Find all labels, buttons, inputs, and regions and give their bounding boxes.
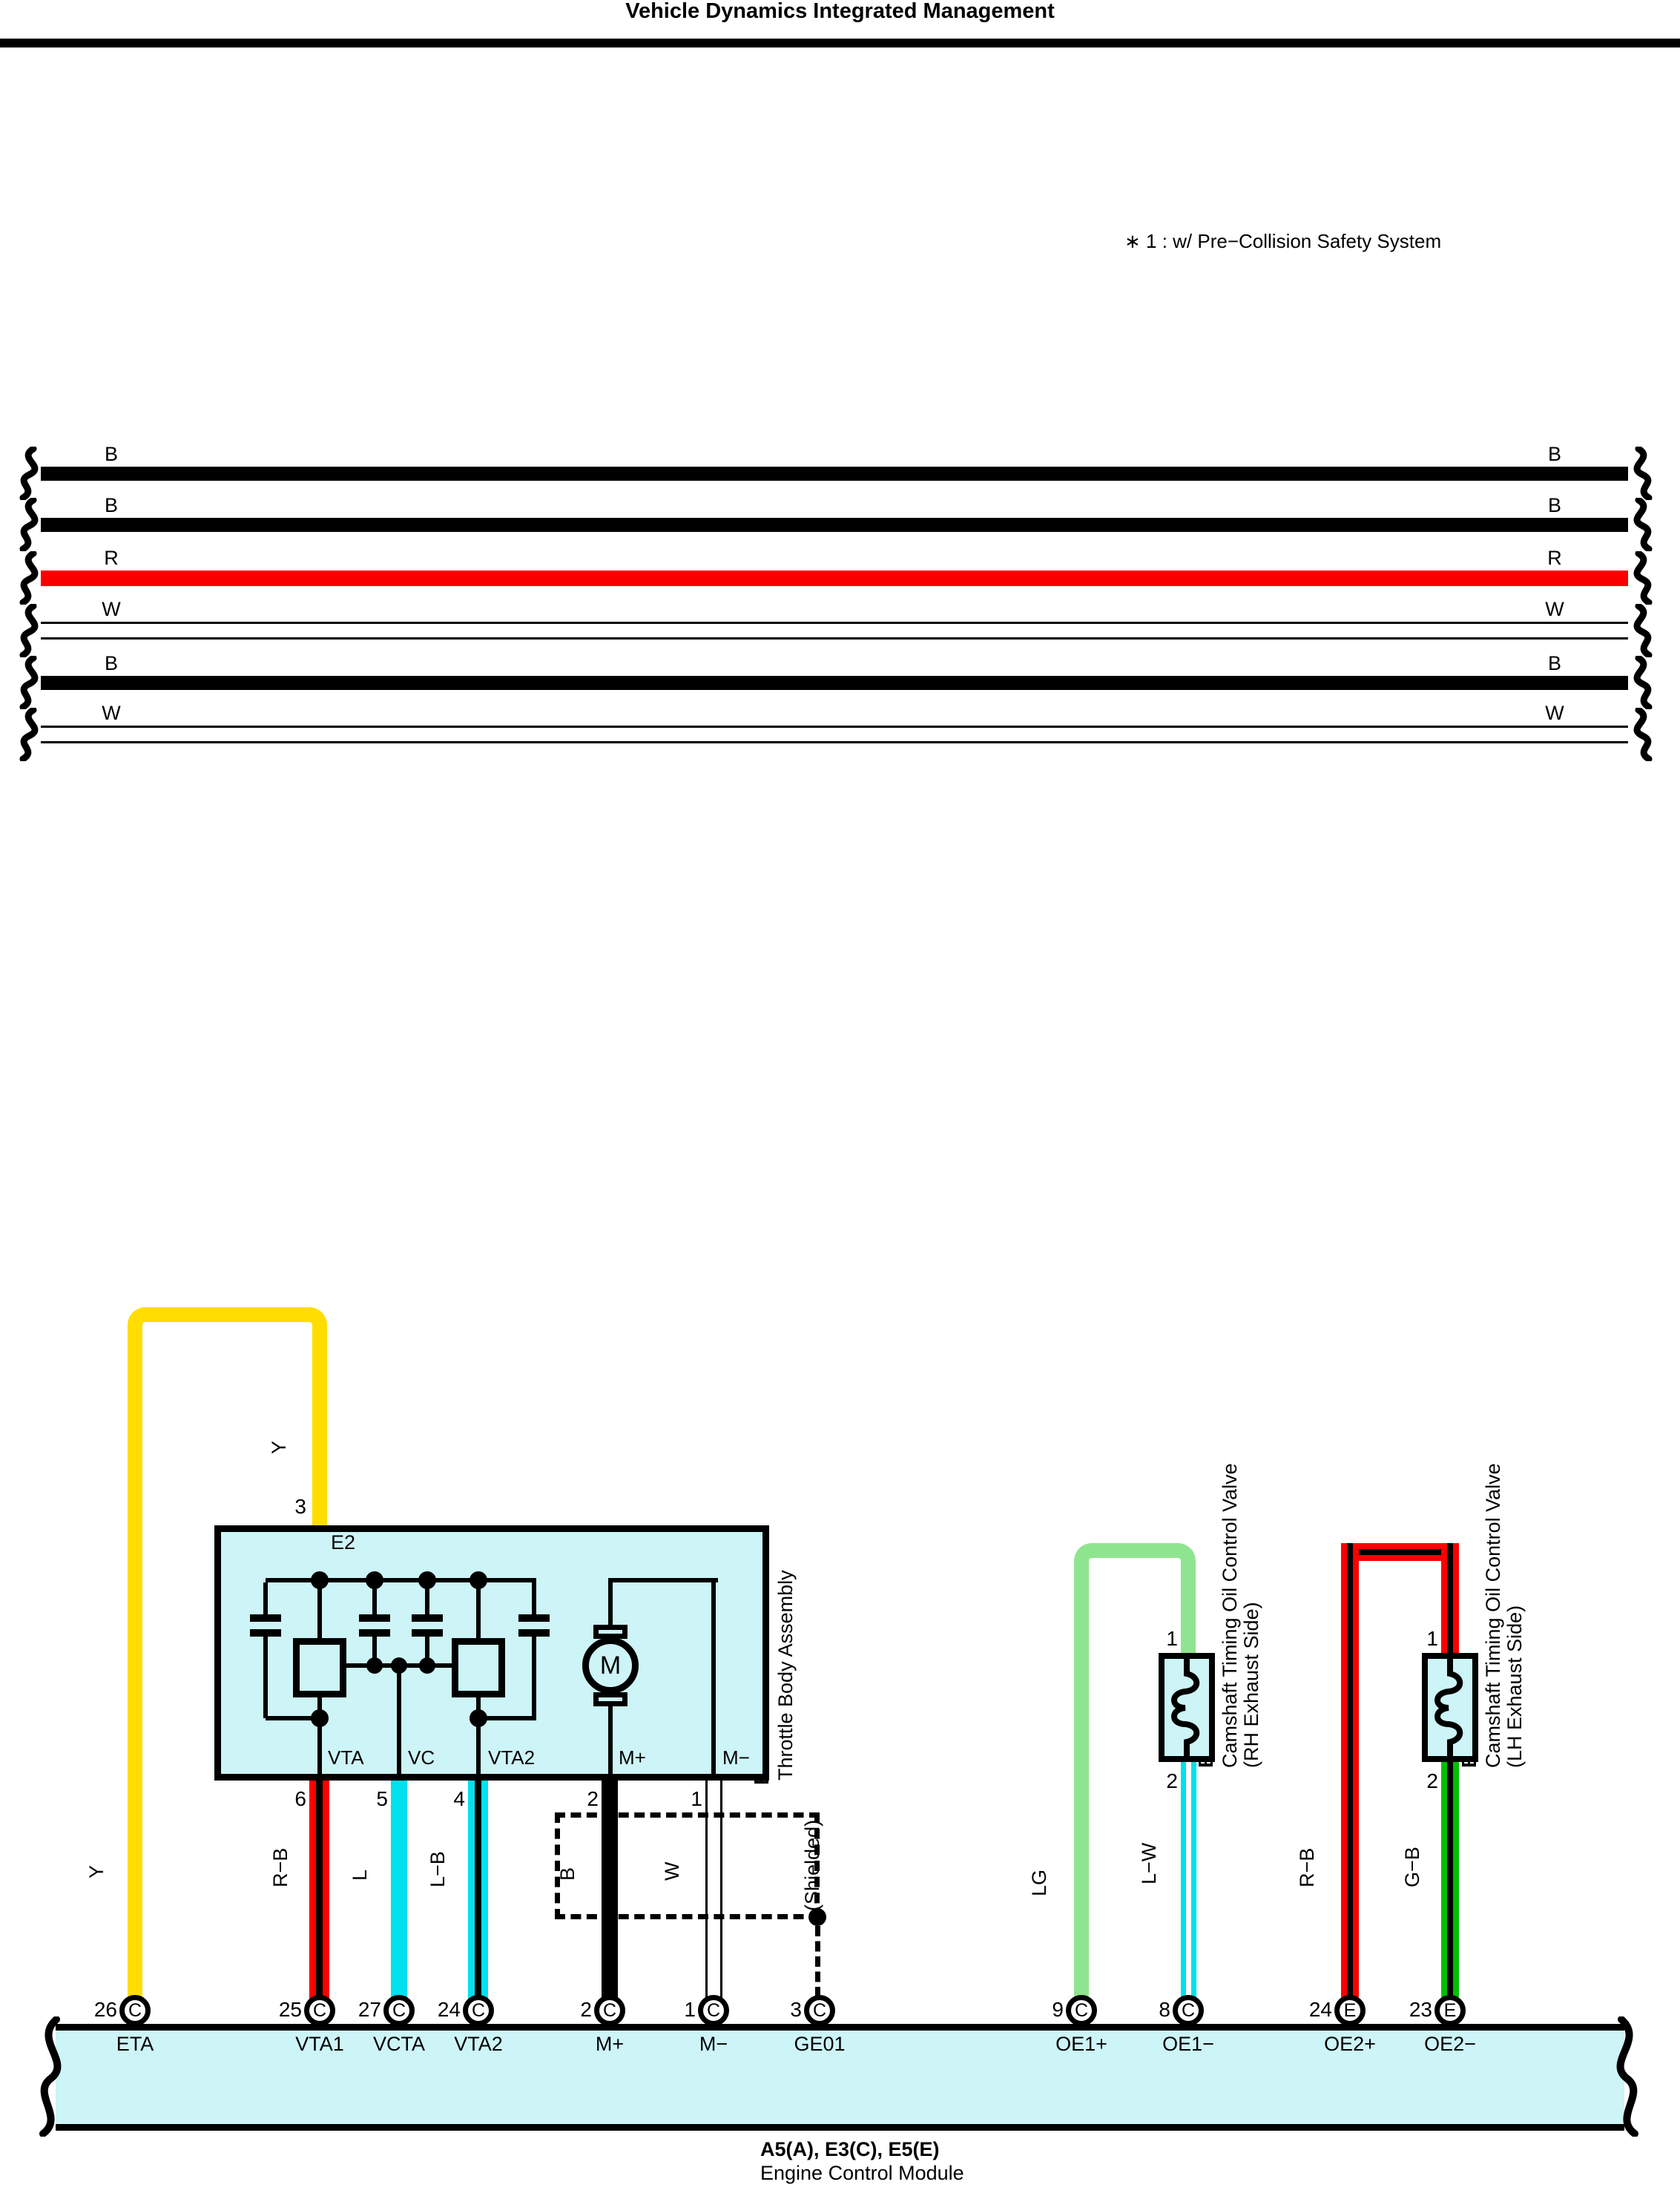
wire-color-label-y: Y bbox=[85, 1865, 108, 1878]
pin-number: 2 bbox=[554, 1788, 599, 1810]
ecm-terminal-label: VTA2 bbox=[426, 2033, 530, 2055]
wire-green-black bbox=[1441, 1761, 1459, 1997]
ecm-terminal-label: OE2− bbox=[1398, 2033, 1502, 2055]
connector-circle: C bbox=[698, 1995, 729, 2026]
capacitor-icon bbox=[518, 1629, 550, 1637]
valve-pin-number: 2 bbox=[1394, 1770, 1438, 1792]
capacitor-icon bbox=[359, 1629, 390, 1637]
motor-icon: M bbox=[582, 1637, 639, 1694]
trunk-wire-label-left: B bbox=[95, 494, 128, 516]
component-name: Camshaft Timing Oil Control Valve bbox=[1482, 1463, 1504, 1768]
trunk-wire-label-right: B bbox=[1538, 443, 1571, 465]
connector-circle: C bbox=[804, 1995, 835, 2026]
ecm-caption-connectors: A5(A), E3(C), E5(E) bbox=[760, 2138, 940, 2160]
capacitor-icon bbox=[359, 1614, 390, 1622]
connector-circle: C bbox=[463, 1995, 494, 2026]
wire-break-icon bbox=[1632, 498, 1657, 551]
terminal-label-vc: VC bbox=[408, 1746, 435, 1769]
capacitor-lead bbox=[263, 1637, 268, 1718]
motor-lead bbox=[608, 1582, 613, 1627]
pin-number: 6 bbox=[262, 1788, 306, 1810]
motor-terminal-icon bbox=[593, 1692, 627, 1706]
valve-pin-number: 2 bbox=[1133, 1770, 1178, 1792]
wire-break-icon bbox=[15, 498, 40, 551]
connector-code-e2: E2 bbox=[331, 1531, 355, 1554]
box-break-icon bbox=[31, 2016, 64, 2137]
component-side: (LH Exhaust Side) bbox=[1503, 1605, 1526, 1768]
box-break-icon bbox=[1614, 2016, 1647, 2137]
wire-color-label: L−W bbox=[1138, 1843, 1160, 1884]
trunk-wire-label-right: W bbox=[1538, 702, 1571, 724]
sensor-element-icon bbox=[452, 1638, 505, 1697]
wire-red-black-oe2plus bbox=[1341, 1543, 1359, 1997]
wire-light-green-oe1plus bbox=[1074, 1651, 1089, 1997]
junction-dot bbox=[419, 1657, 435, 1674]
wire-break-icon bbox=[1632, 604, 1657, 657]
shielded-label: (Shielded) bbox=[801, 1820, 823, 1911]
wire-break-icon bbox=[15, 551, 40, 605]
trunk-wire-white bbox=[41, 622, 1628, 640]
component-name-throttle-body: Throttle Body Assembly bbox=[774, 1570, 797, 1781]
wire-color-label: R−B bbox=[1296, 1848, 1318, 1887]
wire-break-icon bbox=[1632, 656, 1657, 709]
wire-break-icon bbox=[15, 447, 40, 500]
wire-color-label: L bbox=[349, 1870, 371, 1881]
connector-pin-number: 2 bbox=[547, 1999, 592, 2021]
connector-pin-number: 25 bbox=[257, 1999, 302, 2021]
trunk-wire-label-right: B bbox=[1538, 494, 1571, 516]
internal-lead-vta2 bbox=[476, 1697, 481, 1781]
trunk-wire-label-right: W bbox=[1538, 598, 1571, 620]
connector-pin-number: 1 bbox=[651, 1999, 696, 2021]
capacitor-lead bbox=[372, 1582, 377, 1614]
wire-red-black-valve-lead bbox=[1441, 1543, 1459, 1653]
sensor-element-icon bbox=[293, 1638, 346, 1697]
connector-pin-number: 26 bbox=[73, 1999, 117, 2021]
ecm-terminal-label: OE1+ bbox=[1030, 2033, 1133, 2055]
capacitor-icon bbox=[250, 1614, 281, 1622]
capacitor-icon bbox=[412, 1629, 443, 1637]
connector-circle: E bbox=[1434, 1995, 1466, 2026]
coil-icon bbox=[1166, 1659, 1208, 1756]
wire-blue-white bbox=[1181, 1761, 1196, 1997]
capacitor-lead bbox=[425, 1582, 429, 1614]
connector-pin-number: 3 bbox=[757, 1999, 802, 2021]
connector-circle: C bbox=[594, 1995, 625, 2026]
internal-lead-m-plus bbox=[608, 1704, 613, 1781]
coil-icon bbox=[1429, 1659, 1471, 1756]
connector-circle: E bbox=[1334, 1995, 1366, 2026]
connector-circle: C bbox=[1066, 1995, 1097, 2026]
wire-break-icon bbox=[1632, 447, 1657, 500]
wire-color-label-y: Y bbox=[268, 1441, 290, 1454]
terminal-label-vta: VTA bbox=[328, 1746, 364, 1769]
wire-break-icon bbox=[15, 708, 40, 761]
pin-number: 5 bbox=[343, 1788, 388, 1810]
wire-break-icon bbox=[1632, 551, 1657, 605]
internal-lead-vc bbox=[397, 1666, 401, 1781]
capacitor-icon bbox=[412, 1614, 443, 1622]
component-side: (RH Exhaust Side) bbox=[1240, 1602, 1262, 1768]
footnote: ∗ 1 : w/ Pre−Collision Safety System bbox=[1124, 230, 1441, 252]
motor-terminal-icon bbox=[593, 1625, 627, 1639]
connector-pin-number: 9 bbox=[1019, 1999, 1064, 2021]
trunk-wire-red bbox=[41, 571, 1628, 586]
internal-bus-top bbox=[266, 1578, 536, 1582]
internal-lead-vta bbox=[317, 1697, 322, 1781]
connector-pin-number: 8 bbox=[1126, 1999, 1170, 2021]
wire-red-black bbox=[309, 1781, 329, 1999]
pin-number: 1 bbox=[658, 1788, 702, 1810]
connector-pin-number: 23 bbox=[1388, 1999, 1432, 2021]
capacitor-lead bbox=[532, 1637, 536, 1718]
ecm-terminal-label: OE2+ bbox=[1298, 2033, 1402, 2055]
trunk-wire-white bbox=[41, 726, 1628, 743]
motor-bus bbox=[608, 1578, 718, 1582]
ecm-terminal-label: OE1− bbox=[1136, 2033, 1240, 2055]
ecm-terminal-label: GE01 bbox=[768, 2033, 872, 2055]
valve-pin-number: 1 bbox=[1394, 1628, 1438, 1650]
terminal-label-m-minus: M− bbox=[722, 1746, 750, 1769]
page-title: Vehicle Dynamics Integrated Management bbox=[0, 0, 1680, 22]
capacitor-icon bbox=[250, 1629, 281, 1637]
component-name: Camshaft Timing Oil Control Valve bbox=[1219, 1463, 1241, 1768]
connector-circle: C bbox=[383, 1995, 415, 2026]
internal-lead-vta bbox=[317, 1582, 322, 1638]
ecm-terminal-label: M− bbox=[662, 2033, 765, 2055]
wire-yellow-hook bbox=[128, 1307, 327, 1525]
wire-color-label: G−B bbox=[1401, 1847, 1423, 1887]
ecm-terminal-label: M+ bbox=[558, 2033, 662, 2055]
trunk-wire-black bbox=[41, 676, 1628, 690]
internal-lead-m-minus bbox=[711, 1582, 716, 1781]
wire-blue bbox=[391, 1781, 407, 1999]
capacitor-icon bbox=[518, 1614, 550, 1622]
ecm-terminal-label: ETA bbox=[83, 2033, 187, 2055]
connector-circle: C bbox=[304, 1995, 335, 2026]
trunk-wire-label-right: B bbox=[1538, 652, 1571, 674]
connector-circle: C bbox=[119, 1995, 151, 2026]
terminal-label-vta2: VTA2 bbox=[488, 1746, 535, 1769]
trunk-wire-label-left: W bbox=[95, 702, 128, 724]
title-rule bbox=[0, 39, 1680, 47]
connector-pin-number: 24 bbox=[1288, 1999, 1332, 2021]
wire-blue-black bbox=[468, 1781, 488, 1999]
terminal-label-m-plus: M+ bbox=[619, 1746, 646, 1769]
trunk-wire-label-left: B bbox=[95, 443, 128, 465]
shield-outline bbox=[555, 1812, 820, 1919]
wire-color-label: LG bbox=[1028, 1870, 1050, 1896]
pin-number: 4 bbox=[421, 1788, 465, 1810]
wire-break-icon bbox=[1632, 708, 1657, 761]
trunk-wire-black bbox=[41, 518, 1628, 532]
connector-pin-number: 24 bbox=[416, 1999, 461, 2021]
shield-ground-lead bbox=[815, 1926, 826, 1997]
wire-yellow-eta bbox=[128, 1521, 142, 1997]
valve-pin-number: 1 bbox=[1133, 1628, 1178, 1650]
wire-break-icon bbox=[15, 656, 40, 709]
trunk-wire-label-right: R bbox=[1538, 547, 1571, 569]
pin-number-3: 3 bbox=[262, 1496, 306, 1518]
connector-circle: C bbox=[1173, 1995, 1204, 2026]
junction-dot bbox=[366, 1657, 383, 1674]
trunk-wire-label-left: B bbox=[95, 652, 128, 674]
internal-lead-vta2 bbox=[476, 1582, 481, 1638]
connector-pin-number: 27 bbox=[337, 1999, 381, 2021]
ecm-caption-name: Engine Control Module bbox=[760, 2162, 964, 2184]
capacitor-lead bbox=[263, 1582, 268, 1614]
wire-color-label: R−B bbox=[269, 1848, 291, 1887]
trunk-wire-label-left: W bbox=[95, 598, 128, 620]
capacitor-lead bbox=[532, 1582, 536, 1614]
trunk-wire-label-left: R bbox=[95, 547, 128, 569]
trunk-wire-black bbox=[41, 467, 1628, 481]
wire-break-icon bbox=[15, 604, 40, 657]
wire-color-label: L−B bbox=[426, 1851, 449, 1887]
wiring-diagram-page: Vehicle Dynamics Integrated Management ∗… bbox=[0, 0, 1680, 2196]
